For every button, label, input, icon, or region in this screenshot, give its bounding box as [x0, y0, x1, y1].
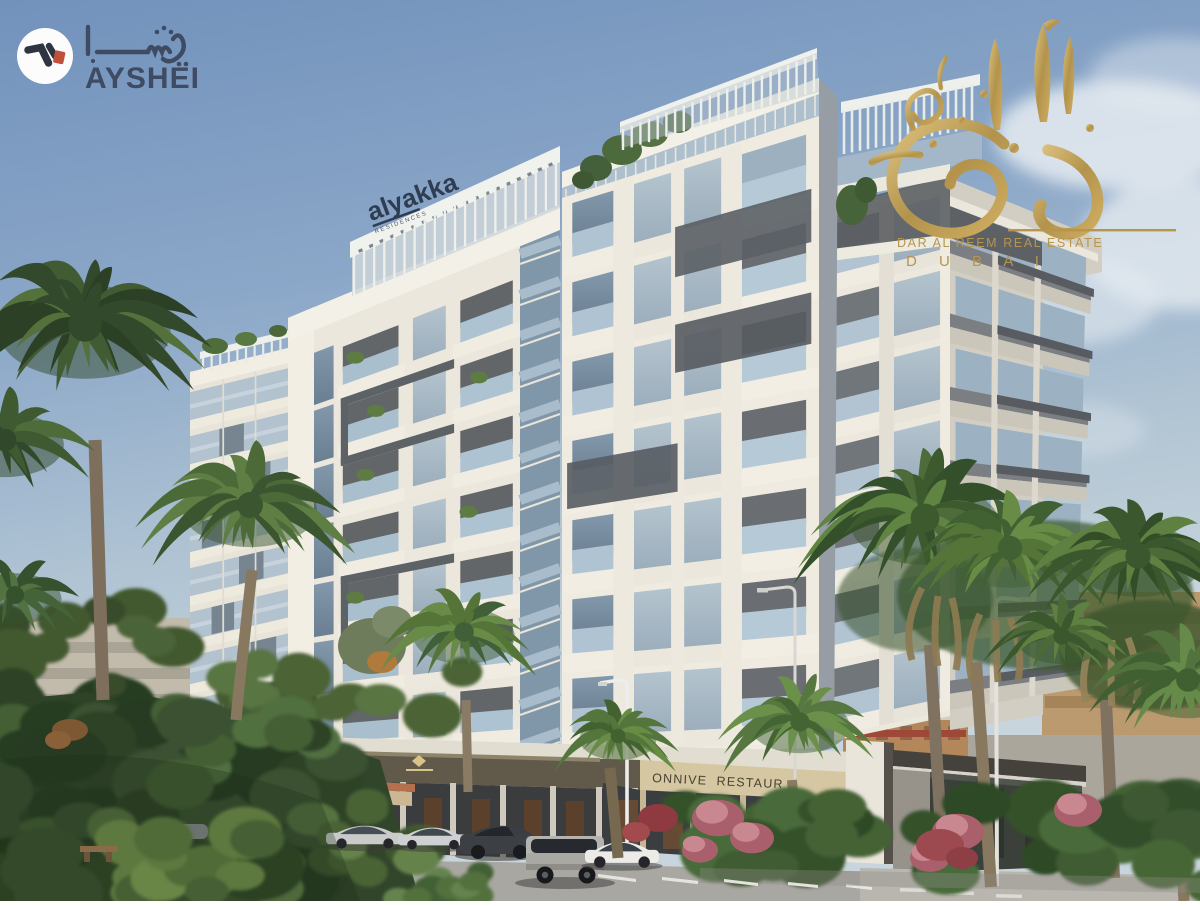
svg-text:DAR AL REEM REAL ESTATE: DAR AL REEM REAL ESTATE [897, 236, 1103, 250]
svg-text:AYSHEI: AYSHEI [85, 62, 200, 95]
svg-text:D U B A I: D U B A I [906, 253, 1048, 270]
